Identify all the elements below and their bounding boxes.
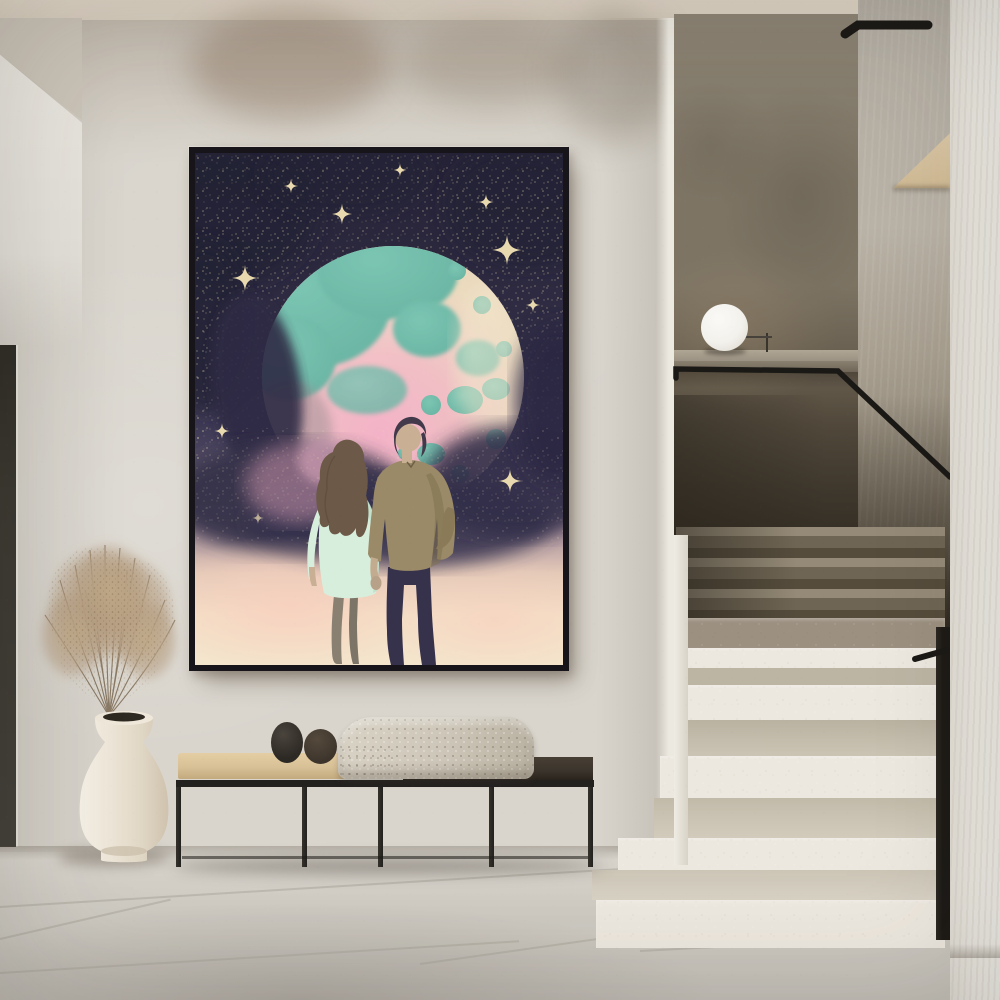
stair-tread <box>654 798 945 838</box>
decor-stone <box>304 729 337 764</box>
poster-art <box>195 153 563 665</box>
wall-smudge <box>405 22 575 107</box>
bench-frame-bar <box>176 780 594 787</box>
stair-tread <box>680 668 945 685</box>
stair-riser <box>682 648 945 668</box>
ceramic-vase <box>80 711 169 862</box>
vase-and-pampas <box>15 520 215 870</box>
bench-leg <box>378 787 383 867</box>
blanket-fold <box>340 747 394 780</box>
parapet-shadow <box>674 372 858 388</box>
bench-leg <box>588 787 593 867</box>
pampas-grass <box>37 540 180 716</box>
parapet-ledge-face <box>674 361 858 372</box>
stair-riser <box>618 838 945 870</box>
landing-rail <box>742 336 772 338</box>
sphere-lamp <box>701 304 748 351</box>
decor-stone <box>271 722 303 763</box>
stair-riser-bottom <box>596 900 945 948</box>
vase-mouth <box>103 713 145 722</box>
stair-tread <box>678 618 945 648</box>
bench-floor-shadow <box>172 858 604 874</box>
upper-stair-flight <box>676 527 945 620</box>
stair-tread-platform <box>592 870 945 900</box>
framed-moon-poster <box>189 147 569 671</box>
bench-leg <box>302 787 307 867</box>
bench-leg <box>489 787 494 867</box>
white-side-wall <box>950 0 1000 1000</box>
stair-tread <box>674 720 945 756</box>
interior-scene <box>0 0 1000 1000</box>
dark-doorway-edge <box>0 345 16 847</box>
wedge-shadow <box>893 186 950 191</box>
wall-corner-highlight <box>656 18 674 860</box>
stair-stringer-wall <box>674 535 688 865</box>
held-hands <box>371 576 382 590</box>
white-wall-base-shadow <box>950 944 1000 958</box>
stair-riser <box>660 756 945 798</box>
bench-back-rail <box>182 856 588 859</box>
stair-riser <box>677 685 945 720</box>
wall-smudge <box>190 10 390 120</box>
